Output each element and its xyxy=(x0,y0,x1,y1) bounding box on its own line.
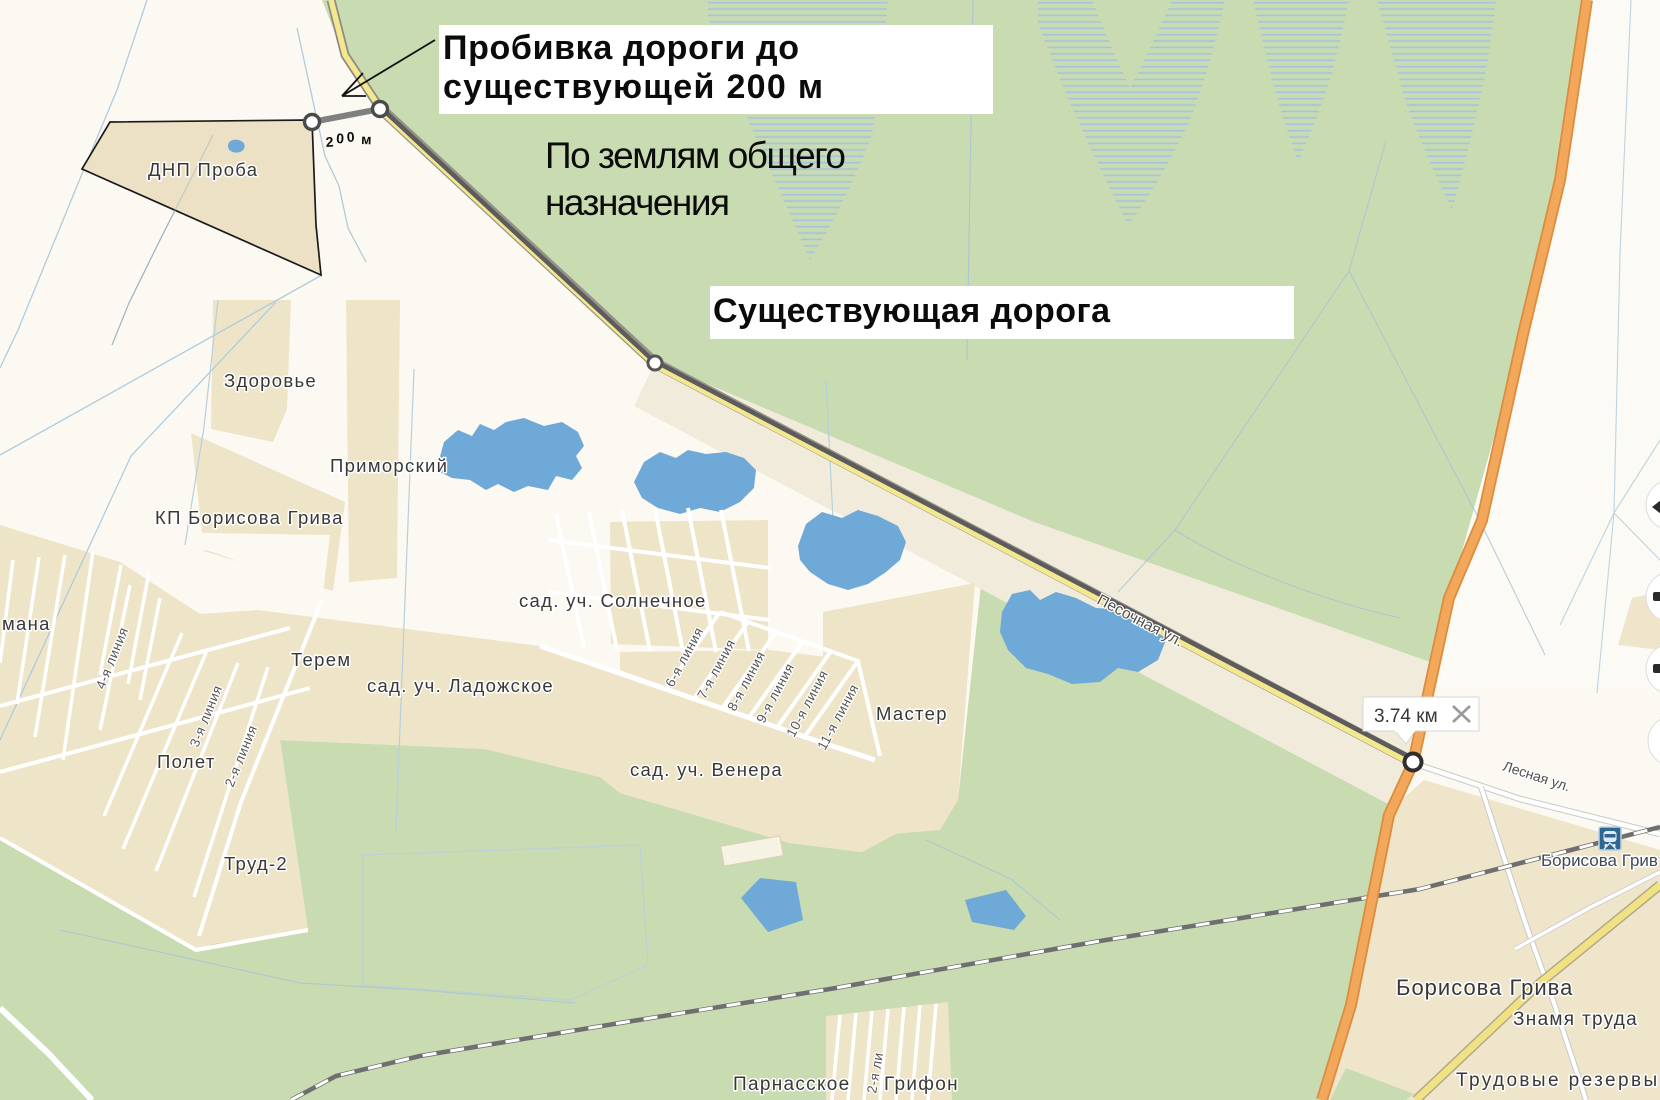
svg-text:Труд-2: Труд-2 xyxy=(224,853,288,874)
svg-text:3.74 км: 3.74 км xyxy=(1374,706,1438,727)
svg-text:КП Борисова Грива: КП Борисова Грива xyxy=(155,507,344,528)
svg-text:Парнасское: Парнасское xyxy=(733,1074,851,1095)
svg-text:сад. уч. Венера: сад. уч. Венера xyxy=(630,759,783,780)
svg-text:Терем: Терем xyxy=(291,649,351,670)
svg-text:м: м xyxy=(361,131,372,147)
svg-text:Мастер: Мастер xyxy=(876,703,948,724)
svg-text:Борисова Грив: Борисова Грив xyxy=(1541,851,1658,870)
svg-text:Пробивка дороги до: Пробивка дороги до xyxy=(443,29,799,67)
svg-text:сад. уч. Солнечное: сад. уч. Солнечное xyxy=(519,590,707,611)
svg-text:Приморский: Приморский xyxy=(330,455,448,476)
svg-text:Знамя труда: Знамя труда xyxy=(1513,1009,1638,1030)
svg-text:назначения: назначения xyxy=(545,182,730,223)
svg-text:Борисова Грива: Борисова Грива xyxy=(1396,975,1573,1000)
svg-text:Здоровье: Здоровье xyxy=(224,370,317,391)
svg-text:0: 0 xyxy=(336,130,345,146)
svg-text:существующей 200 м: существующей 200 м xyxy=(443,68,823,106)
svg-text:Грифон: Грифон xyxy=(884,1074,959,1095)
svg-text:мана: мана xyxy=(2,613,51,634)
svg-text:По землям общего: По землям общего xyxy=(545,135,846,176)
svg-text:сад. уч. Ладожское: сад. уч. Ладожское xyxy=(367,675,554,696)
svg-text:Полет: Полет xyxy=(157,751,216,772)
svg-text:ДНП Проба: ДНП Проба xyxy=(148,159,258,180)
svg-text:Существующая дорога: Существующая дорога xyxy=(713,292,1111,330)
svg-text:Трудовые резервы: Трудовые резервы xyxy=(1456,1070,1660,1091)
svg-text:2: 2 xyxy=(325,133,334,150)
svg-text:0: 0 xyxy=(346,129,355,145)
